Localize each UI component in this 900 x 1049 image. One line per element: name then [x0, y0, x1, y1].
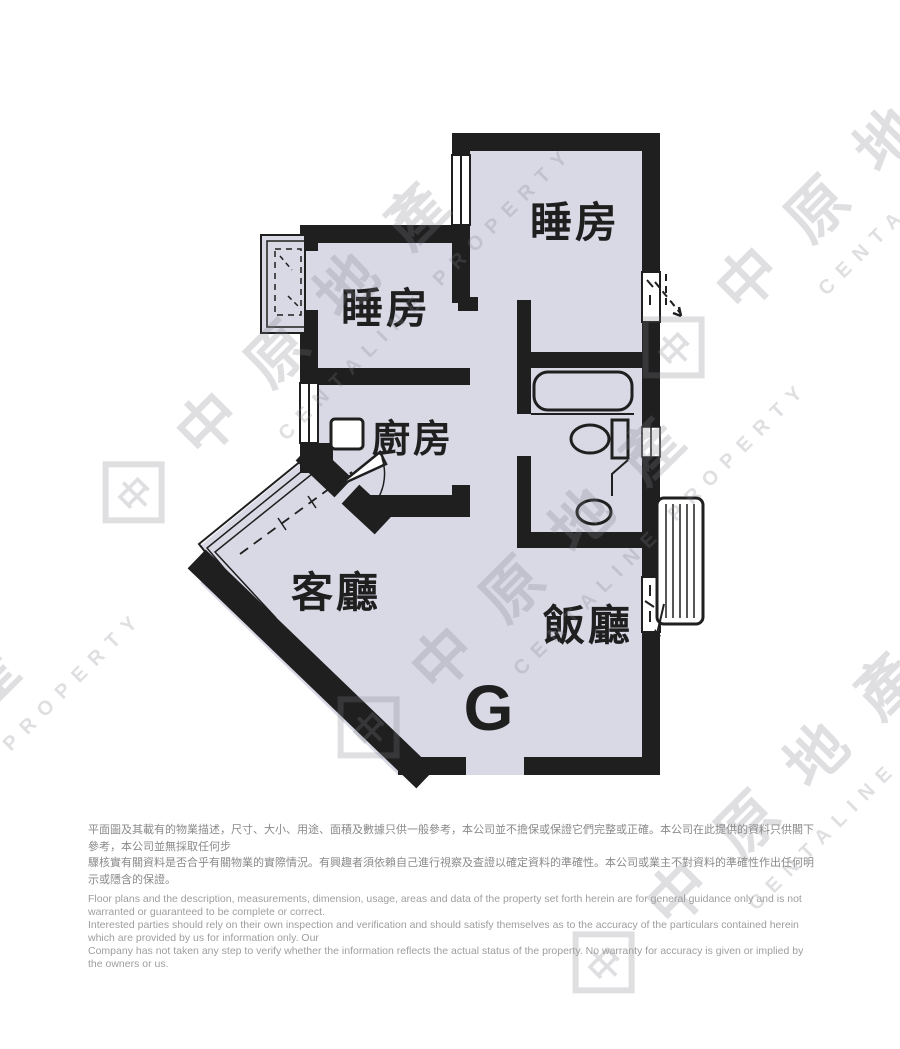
ac-platform-window-icon — [642, 272, 681, 322]
disclaimer-en-line3: Company has not taken any step to verify… — [88, 945, 820, 971]
disclaimer-en-line1: Floor plans and the description, measure… — [88, 893, 820, 919]
unit-label: G — [464, 672, 517, 744]
room-label-dining: 飯廳 — [543, 602, 633, 649]
bedroom-bay-window-icon — [261, 235, 305, 333]
toilet-icon — [571, 420, 628, 458]
washbasin-icon — [577, 500, 611, 524]
disclaimer-zh-line2: 驟核實有關資料是否合乎有關物業的實際情況。有興趣者須依賴自己進行視察及查證以確定… — [88, 855, 820, 888]
bathtub-icon — [531, 372, 634, 414]
kitchen-sink-icon — [331, 419, 363, 449]
disclaimer: 平面圖及其載有的物業描述，尺寸、大小、用途、面積及數據只供一般參考，本公司並不擔… — [88, 822, 820, 971]
room-label-bedroom-left: 睡房 — [341, 285, 431, 332]
room-label-bedroom-top-right: 睡房 — [530, 199, 620, 246]
disclaimer-zh-line1: 平面圖及其載有的物業描述，尺寸、大小、用途、面積及數據只供一般參考，本公司並不擔… — [88, 822, 820, 855]
disclaimer-en-line2: Interested parties should rely on their … — [88, 919, 820, 945]
room-label-kitchen: 廚房 — [372, 418, 454, 461]
ac-louver-icon — [651, 498, 703, 642]
floor-plan: 睡房 睡房 廚房 客廳 飯廳 G — [0, 0, 900, 900]
room-label-living: 客廳 — [291, 569, 381, 616]
